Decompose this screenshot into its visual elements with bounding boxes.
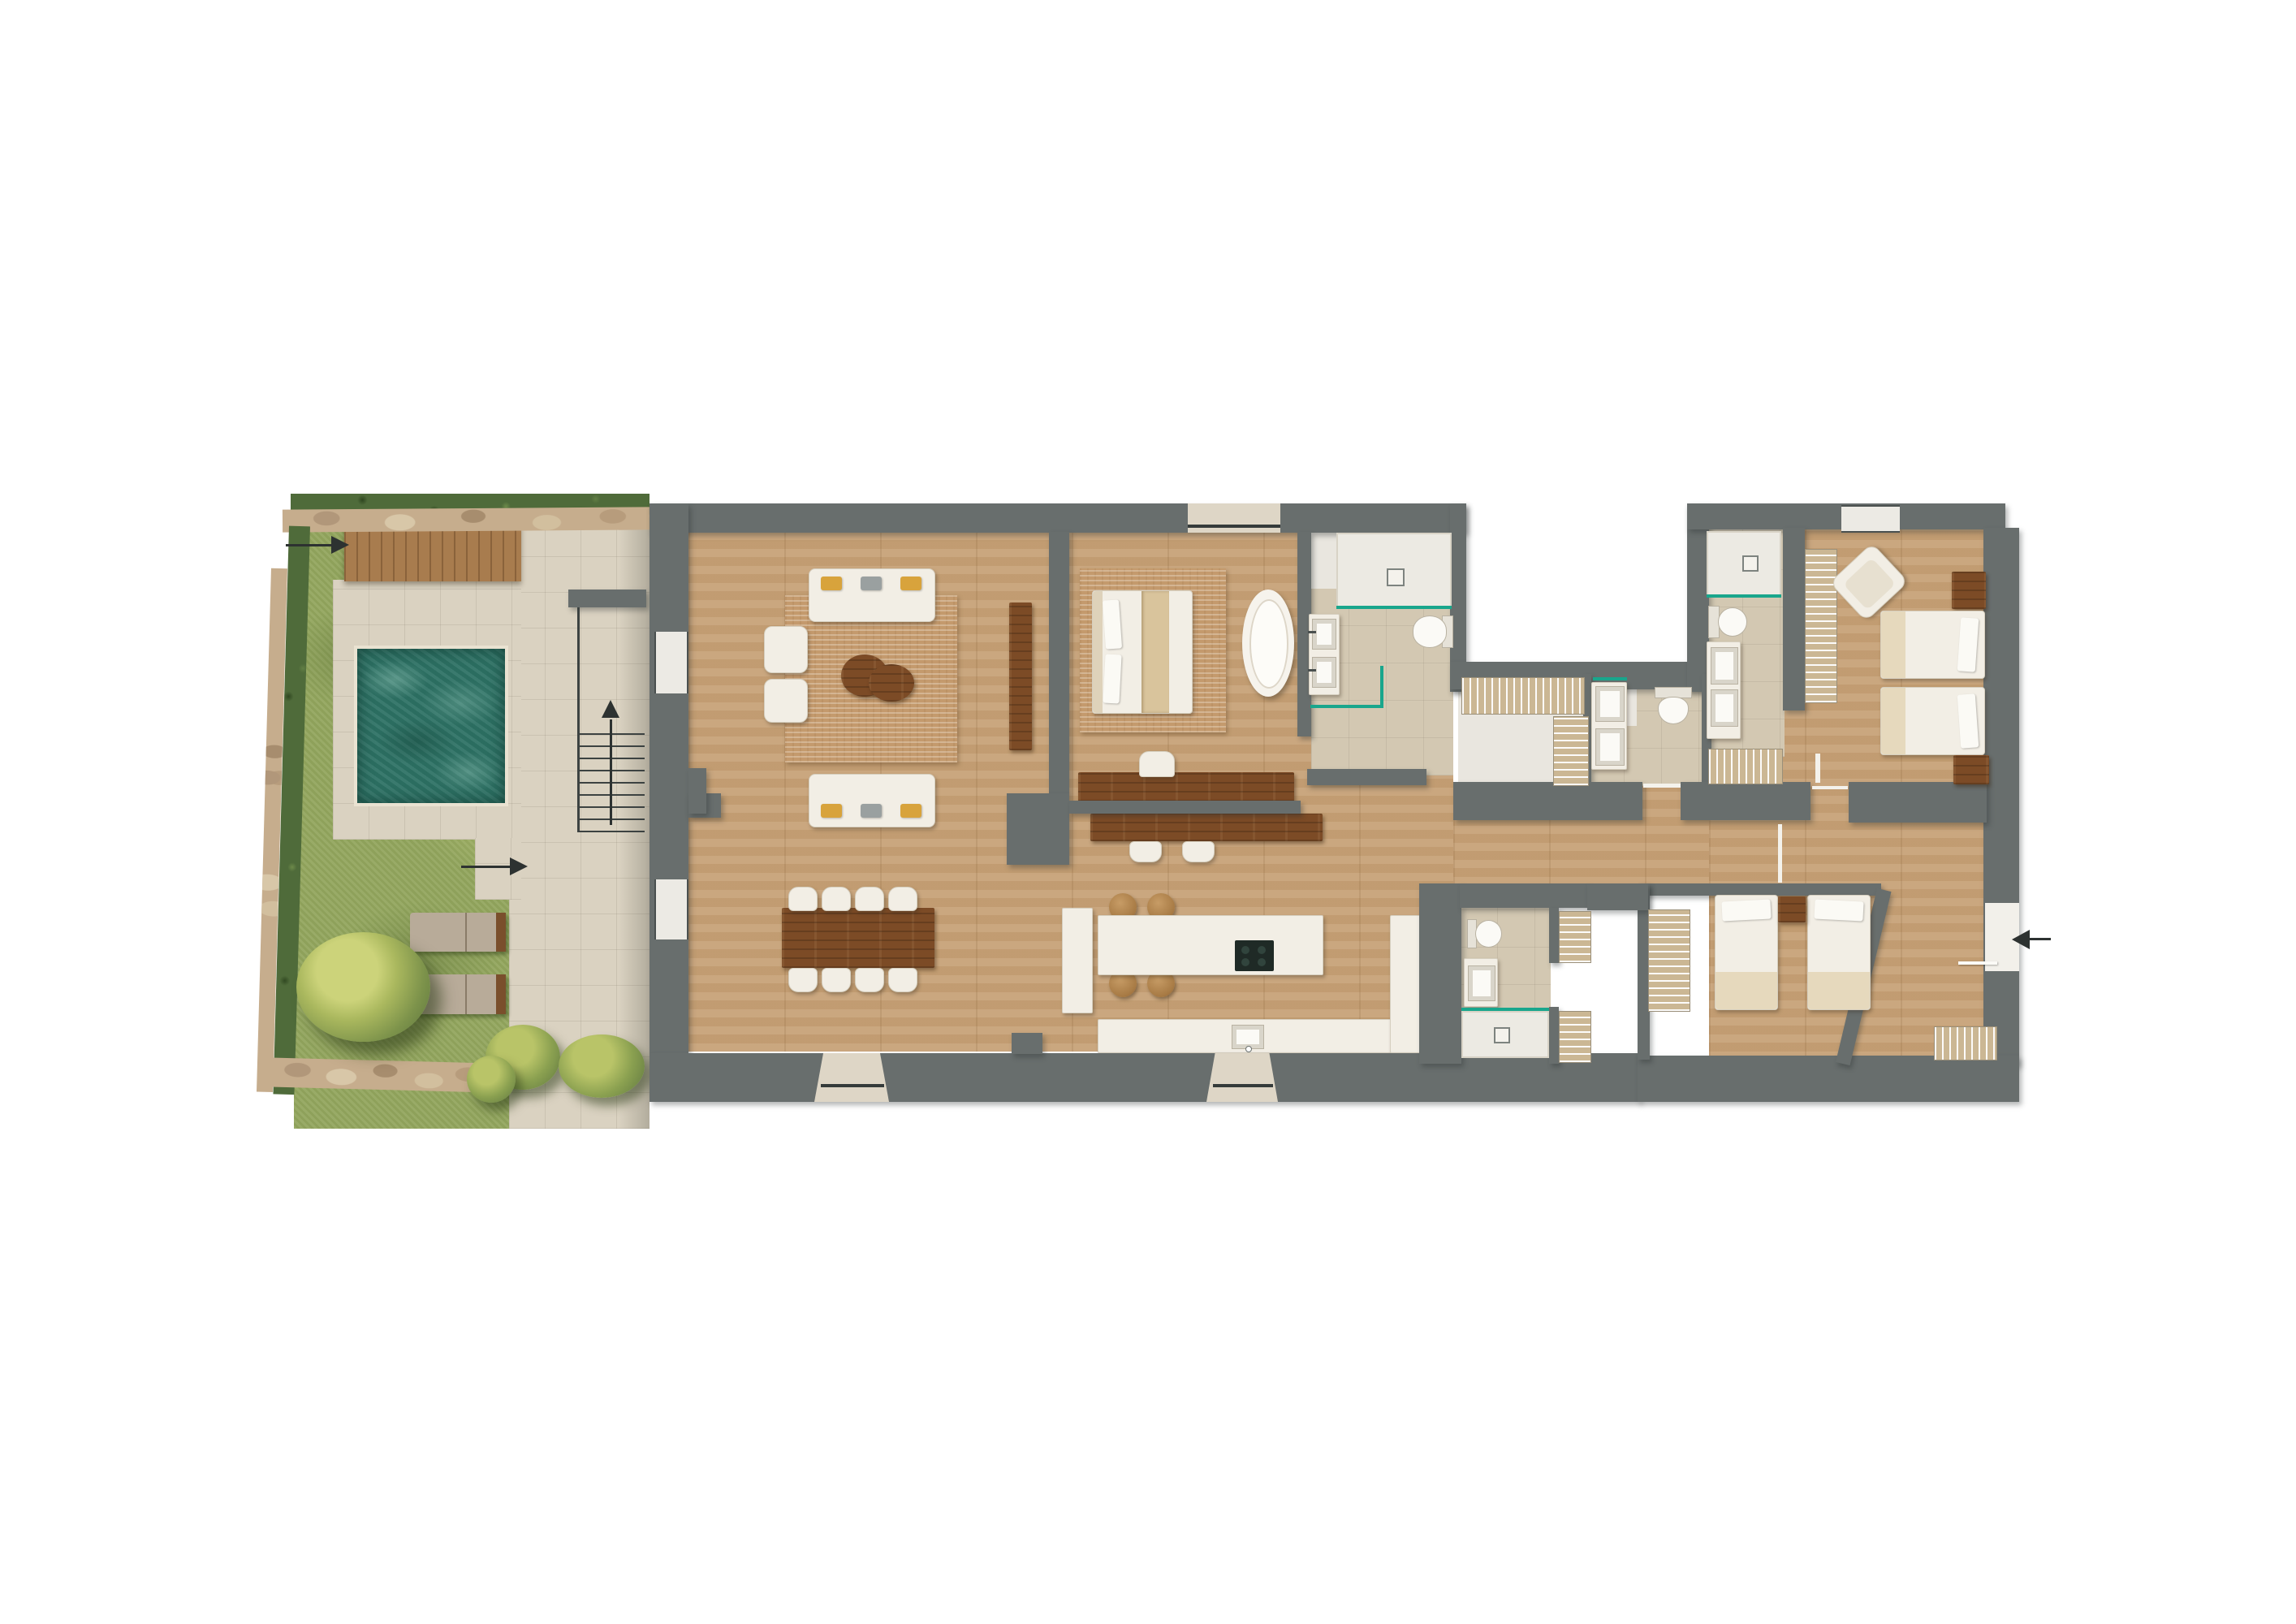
wall-hall-north-c [1849,782,1987,823]
wall-wing-connector [1587,883,1648,910]
faucet [1308,669,1316,672]
door-glass-line [1188,525,1280,528]
sofa [809,568,935,622]
wc-glass [1593,677,1627,680]
towel-radiator [1559,911,1591,963]
wall-bedroom3-north [1638,883,1881,896]
nightstand [1778,896,1806,922]
double-bed [1092,590,1193,714]
west-arrow-shaft [286,544,333,546]
west-window [654,879,688,939]
vanity-basin [1312,657,1336,688]
kitchen-island [1098,915,1323,975]
bath2-vanity [1707,641,1741,739]
north-glazed-door [1188,503,1280,533]
bath3-vanity [1464,958,1498,1007]
entry-arrow-east-shaft [2030,938,2051,940]
south-porch-door [1206,1053,1278,1102]
bath2-toilet [1708,604,1746,638]
bed-throw [1808,972,1870,1009]
shower-glass-screen [1336,606,1452,609]
nightstand [1952,572,1986,609]
bath2-shower-tray [1707,531,1781,596]
bed-throw [1716,972,1777,1009]
north-window-wing [1841,505,1900,533]
wall-bedroom-south [1069,801,1301,814]
wardrobe-rail-horizontal [1461,677,1585,715]
toilet-bowl [1475,920,1502,948]
bathtub-inner [1249,599,1288,689]
timber-deck [344,525,521,581]
bed-pillow [1814,899,1863,921]
towel-radiator [1934,1026,1997,1060]
master-vanity [1309,614,1340,695]
console-stool [1129,841,1162,862]
bedroom3-wardrobe [1648,909,1690,1012]
writing-desk [1078,772,1294,801]
master-toilet [1413,614,1452,648]
threshold [1815,754,1820,783]
nightstand [1953,755,1989,784]
swimming-pool [354,646,508,806]
floor-plan-canvas [0,0,2296,1624]
coffee-table-lobe [869,664,914,702]
path-arrow-shaft [461,866,511,868]
dining-chair [822,968,851,992]
stone-wall-top [283,507,650,532]
large-shrub [296,932,430,1042]
lounger-wood-end [496,974,506,1014]
bed-throw [1881,688,1905,754]
door-line [1213,1084,1273,1087]
bush [467,1056,516,1103]
sofa [809,774,935,827]
cooktop [1235,940,1274,971]
cooktop-burner [1258,946,1266,954]
threshold [1778,824,1782,883]
dining-chair [855,887,884,911]
dining-chair [788,968,818,992]
bed-pillow [1103,654,1121,704]
gray-pillow [861,577,882,590]
wardrobe-rail-vertical [1553,716,1589,786]
towel-radiator [1559,1011,1591,1063]
kitchen-counter-east [1390,915,1422,1053]
wall-south-main [650,1053,1640,1102]
toilet-bowl [1718,607,1747,637]
stairs-head-wall [568,590,646,607]
wc-basin [1595,728,1625,766]
toilet-bowl [1658,697,1689,724]
dining-chair [788,887,818,911]
tall-bookcase [1009,603,1032,750]
lounger-wood-end [496,913,506,952]
wc-basin [1595,686,1625,722]
wall-pier-stepped [1007,793,1069,865]
stairs-up-arrow-icon [602,700,619,718]
kitchen-counter-south [1098,1019,1392,1053]
stone-wall-bottom [271,1057,491,1092]
entry-arrow-west-icon [331,536,349,554]
bed-pillow [1957,617,1979,672]
gold-pillow [900,577,921,590]
wc-door-threshold [1643,784,1681,788]
dining-table [782,908,934,968]
twin-bed [1807,895,1871,1010]
wall-west [650,503,688,1090]
wall-east [1983,528,2019,1065]
master-shower-tray [1336,533,1452,607]
wall-hall-north-a [1453,782,1642,820]
bedroom2-door-threshold [1812,786,1848,789]
cooktop-burner [1241,958,1249,966]
bed-throw [1142,591,1169,713]
west-window [654,632,688,693]
bath2-glass-screen [1707,594,1781,598]
bedroom2-wardrobe [1805,549,1837,703]
exterior-stairs [580,725,645,832]
bush [559,1034,645,1098]
dining-chair [822,887,851,911]
wall-recess-right [1687,503,1709,692]
wc-toilet [1653,687,1694,724]
towel-radiator [1708,749,1783,784]
path-arrow-icon [510,857,528,875]
entry-door-swing [1958,961,1997,965]
wall-north-main [650,503,1466,533]
lounger-fold-line [465,913,467,952]
twin-bed [1715,895,1778,1010]
entry-arrow-east-icon [2012,930,2030,949]
wall-living-bedroom [1049,532,1069,795]
wall-south-wing [1638,1056,2019,1102]
dining-chair [888,887,917,911]
kitchen-faucet [1245,1046,1252,1052]
gold-pillow [821,577,842,590]
cooktop-burner [1258,958,1266,966]
bed-pillow [1103,599,1122,649]
armchair [764,679,808,723]
wall-bath3-north [1460,883,1588,908]
wall-masterbath-south [1307,769,1426,785]
twin-bed [1880,687,1985,755]
fireplace-nook [688,768,706,814]
console-stool [1182,841,1215,862]
vanity-basin [1468,965,1495,1001]
stairs-arrow-shaft [610,719,612,825]
bed-pillow [1721,899,1771,921]
desk-chair [1139,751,1175,777]
shower-drain [1742,555,1759,572]
dining-chair [888,968,917,992]
gold-pillow [900,804,921,818]
gold-pillow [821,804,842,818]
wc-vanity [1591,682,1627,770]
sun-lounger [410,913,506,952]
hall-console [1090,814,1323,841]
freestanding-bathtub [1242,590,1294,697]
vanity-basin [1711,689,1738,727]
bed-pillow [1957,693,1979,748]
toilet-bowl [1413,615,1447,648]
kitchen-tall-cabinet [1062,908,1093,1013]
wall-bath3-east-upper [1549,908,1559,963]
armchair [764,626,808,673]
lounger-fold-line [465,974,467,1014]
bed-throw [1881,611,1905,678]
shower-drain [1494,1027,1510,1043]
gray-pillow [861,804,882,818]
faucet [1308,631,1316,633]
dining-chair [855,968,884,992]
wall-pier-kitchen-south [1012,1033,1042,1054]
wall-bath3-east-lower [1549,1007,1559,1064]
glass-screen [1310,705,1383,708]
wall-bath2-east [1783,528,1805,710]
twin-bed [1880,611,1985,679]
cooktop-burner [1241,946,1249,954]
headboard [1093,591,1103,713]
bath3-toilet [1467,918,1501,948]
wall-kitchen-east [1419,883,1461,1064]
south-porch-door [814,1053,889,1102]
vanity-basin [1711,647,1738,685]
wall-hall-north-b [1681,782,1810,820]
door-line [821,1084,884,1087]
shower-drain [1387,568,1405,586]
bath3-shower-tray [1461,1011,1549,1058]
vanity-basin [1312,619,1336,650]
glass-screen [1380,666,1383,708]
